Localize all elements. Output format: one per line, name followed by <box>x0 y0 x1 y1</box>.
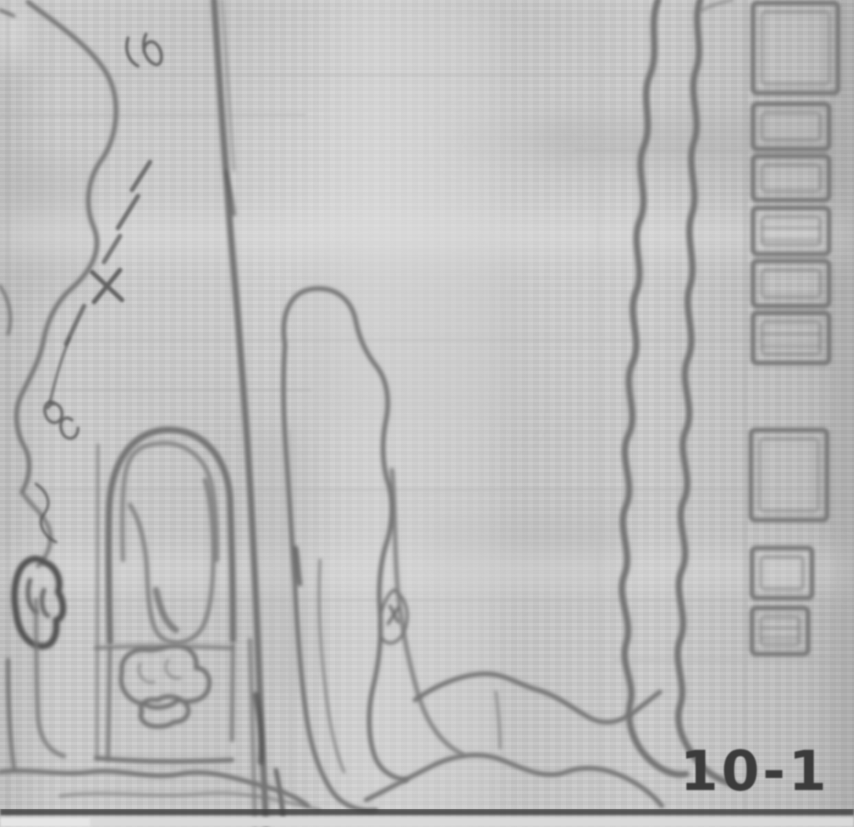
field-plot <box>753 261 829 306</box>
scanned-map-sheet: 10-1 <box>0 0 854 827</box>
map-drawing <box>0 0 854 827</box>
bottom-rule <box>0 812 854 827</box>
field-plot <box>752 608 808 654</box>
right-stream-band <box>622 0 738 786</box>
scan-smudges <box>0 0 854 827</box>
field-plots <box>751 3 838 654</box>
field-plot <box>753 3 838 93</box>
central-road-line <box>214 0 283 827</box>
field-plot <box>753 313 829 363</box>
field-plot <box>751 430 827 520</box>
arch-structure <box>109 430 233 643</box>
sheet-number-label: 10-1 <box>680 744 850 799</box>
